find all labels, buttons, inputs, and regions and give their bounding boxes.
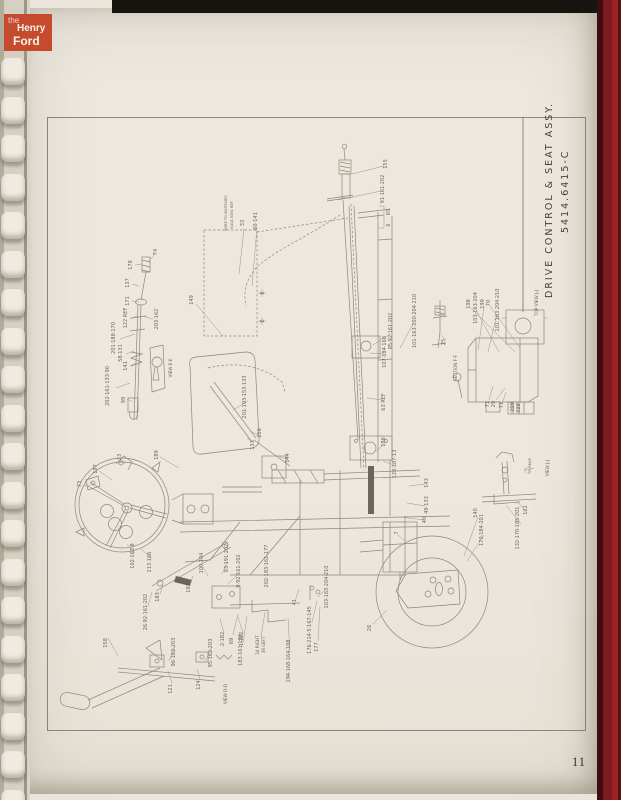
drawing-frame [48, 118, 586, 731]
callout-label: 60·141 [253, 212, 259, 230]
callout-label: 171 [125, 296, 131, 306]
callout-label: 216 [257, 428, 263, 438]
callout-label: 101·163·204·210 [495, 289, 501, 332]
callout-label: 36 LEFT [261, 636, 266, 653]
seat-drawing [190, 352, 290, 466]
callout-label: 101·163·200·204·210 [412, 294, 418, 348]
callout-label: 178 [128, 260, 134, 270]
callout-label: 5414.5391 REF [230, 201, 234, 228]
callout-label: 122 REF [123, 308, 129, 329]
callout-label: 103·163·204 [473, 292, 479, 324]
callout-label: 102·163·8 [130, 543, 136, 568]
callout-label: 144 [285, 453, 291, 463]
drive-disc-drawing [75, 456, 169, 552]
callout-label: 198 [466, 299, 472, 309]
callout-label: 155 [383, 159, 389, 169]
callout-label: 2·182 [220, 632, 226, 646]
photographed-manual-page: the Henry Ford DRIVE CONTROL & SEAT ASSY… [0, 0, 621, 800]
callout-label: 26 [367, 625, 373, 631]
callout-label: 228 [516, 403, 522, 413]
callout-label: 9·92·161·202 [236, 554, 242, 587]
callout-label: 58·131 [118, 344, 124, 362]
callout-label: 25 [441, 339, 447, 345]
callout-label: 99 [121, 397, 127, 403]
callout-label: 107·184·168 [382, 336, 388, 368]
callout-label: 194·168·164·108 [286, 640, 292, 683]
callout-label: SECTION F-F [453, 354, 458, 381]
callout-label: 177 [314, 642, 320, 652]
callout-label: 85·92·161·202 [388, 313, 394, 350]
callout-label: 202·183·161·177 [264, 545, 270, 588]
callout-label: 176·214·5·167·145 [307, 606, 313, 654]
hand-lever-drawing [59, 640, 232, 711]
callout-label: 63 REF [381, 393, 387, 411]
callout-label: 121 [168, 684, 174, 694]
parts-diagram: DRIVE CONTROL & SEAT ASSY. 5414.6415-C [0, 0, 621, 800]
callout-label: 91·161·202 [380, 175, 386, 204]
callout-label: 201·188·170 [111, 322, 117, 354]
callout-label: 201·193·153·133 [242, 376, 248, 419]
callout-label: 132·170·185·201 [515, 507, 521, 550]
top-view-detail-drawing [502, 310, 548, 344]
callout-label: 141 [123, 361, 129, 371]
callout-label: 23 [117, 454, 123, 460]
callout-label: 158 [103, 638, 109, 648]
title-line-2: 5414.6415-C [560, 150, 571, 233]
callout-label: 170·184·201 [479, 514, 485, 546]
callout-label: WIRE TO SWITCHES [224, 195, 228, 231]
callout-label: 74 [153, 249, 159, 255]
callout-label: 143 [424, 478, 430, 488]
callout-label: VIEW J-J [545, 460, 550, 476]
callout-label: E [260, 291, 266, 294]
callout-label: E [260, 319, 266, 322]
callout-label: 189 [154, 450, 160, 460]
callout-label: 70 [486, 300, 492, 306]
callout-label: 93·191·202 [224, 544, 230, 573]
title-line-1: DRIVE CONTROL & SEAT ASSY. [544, 102, 555, 298]
callout-label: 1·182 [239, 632, 245, 646]
callout-label: 40 [422, 517, 428, 523]
callout-label: 33 [240, 220, 246, 226]
callout-label: 128·187·13 [392, 450, 398, 479]
left-rod-drawing [128, 257, 165, 420]
callout-label: 49·133 [424, 496, 430, 514]
callout-label: 191 [186, 583, 192, 593]
callout-label: 137 [125, 278, 131, 288]
page-number: 11 [572, 755, 586, 770]
callout-label: 202·161·133·90 [105, 366, 111, 406]
callout-label: 103·163·204·210 [324, 566, 330, 609]
callout-label: 71 [499, 402, 505, 408]
callout-label: 213·166 [147, 552, 153, 573]
callout-label: TOP VIEW J-J [534, 290, 539, 317]
callout-label: VIEW D-D [223, 684, 228, 704]
callout-label: 197 [93, 464, 99, 474]
callout-label: 183 [155, 592, 161, 602]
callout-label: 7 [394, 531, 400, 534]
callout-label: 203·162 [154, 309, 160, 330]
callout-label: 96·162·203 [171, 638, 177, 667]
callout-label: 26·92·161·202 [143, 594, 149, 631]
drawing-title: DRIVE CONTROL & SEAT ASSY. 5414.6415-C [544, 102, 571, 298]
callout-label: 41 [292, 599, 298, 605]
callout-label: 6 [386, 223, 392, 226]
callout-label: 69 [229, 638, 235, 644]
callout-label: 149 [189, 295, 195, 305]
callout-label: 124 [196, 680, 202, 690]
chassis-drawing [152, 436, 450, 622]
callout-label: TO REAR [528, 458, 532, 475]
callout-label: 34 RIGHT [255, 635, 260, 655]
callout-label: 100·204 [199, 553, 205, 574]
callout-label: 73 [77, 481, 83, 487]
callout-label: 133 [250, 440, 256, 450]
callout-label: 122 [523, 505, 529, 515]
callout-label: 196 [381, 437, 387, 447]
leader-lines [84, 166, 526, 683]
callout-label: 65 [386, 209, 392, 215]
wiring-drawing [204, 215, 348, 336]
callout-label: 29 [491, 401, 497, 407]
callout-label: VIEW E-E [168, 358, 173, 377]
wheel-drawing [360, 522, 488, 648]
callout-label: 95·162·203 [208, 639, 214, 668]
